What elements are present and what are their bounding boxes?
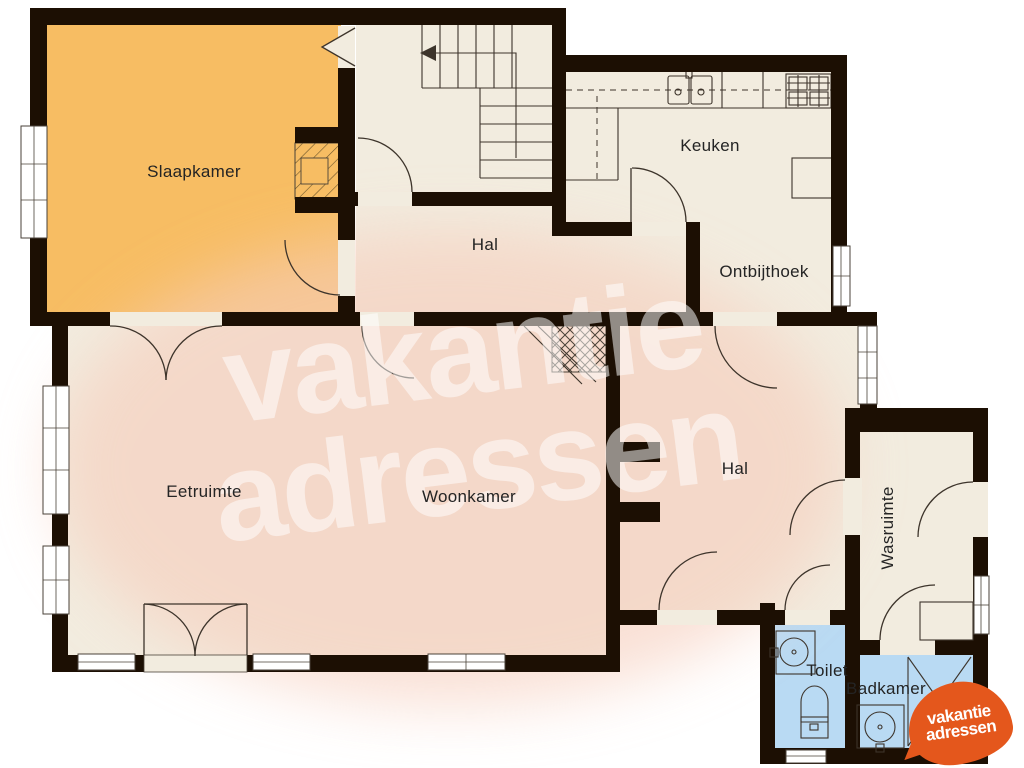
room-label-woonkamer: Woonkamer [422, 487, 516, 507]
room-wasruimte [860, 432, 973, 640]
room-label-wasruimte: Wasruimte [878, 486, 898, 569]
window-eetruimte-left-1 [43, 386, 69, 514]
room-label-toilet: Toilet [806, 661, 848, 681]
window-hal-right [858, 326, 877, 404]
window-bottom-2 [253, 654, 310, 670]
room-label-hal-boven: Hal [472, 235, 498, 255]
window-slaapkamer-left [21, 126, 47, 238]
room-label-hal-onder: Hal [722, 459, 748, 479]
window-wasruimte-right [974, 576, 989, 634]
window-bottom-1 [78, 654, 135, 670]
room-staircase-hall [356, 25, 552, 195]
room-label-eetruimte: Eetruimte [166, 482, 241, 502]
chimney-slaapkamer-icon [295, 143, 341, 199]
floorplan-canvas [0, 0, 1024, 768]
window-ontbijthoek-right [833, 246, 850, 306]
window-eetruimte-left-2 [43, 546, 69, 614]
window-toilet-bottom [786, 750, 826, 763]
room-label-ontbijthoek: Ontbijthoek [719, 262, 808, 282]
floorplan: vakantie adressen Slaapkamer Hal Keuken … [0, 0, 1024, 768]
window-bottom-3 [428, 654, 505, 670]
room-label-badkamer: Badkamer [846, 679, 926, 699]
room-label-keuken: Keuken [680, 136, 739, 156]
room-label-slaapkamer: Slaapkamer [147, 162, 241, 182]
